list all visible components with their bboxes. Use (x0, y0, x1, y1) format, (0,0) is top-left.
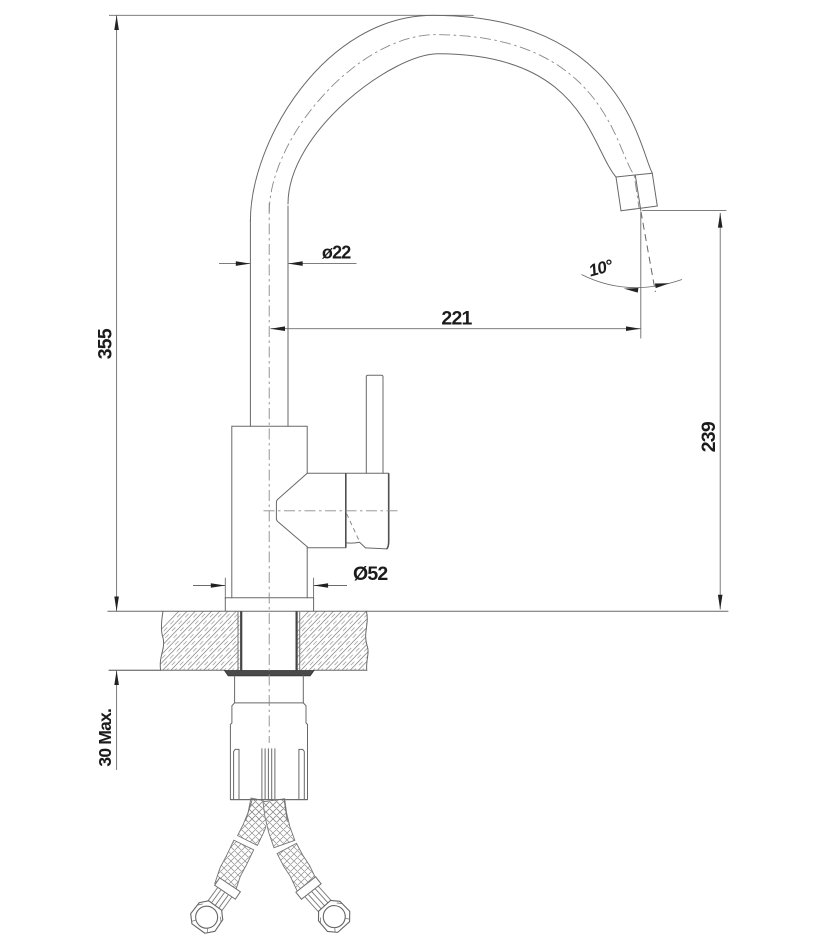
svg-text:Ø52: Ø52 (353, 563, 388, 585)
svg-text:ø22: ø22 (322, 243, 351, 263)
svg-text:355: 355 (94, 328, 116, 359)
svg-text:239: 239 (698, 421, 720, 452)
svg-text:30 Max.: 30 Max. (95, 709, 115, 767)
svg-text:221: 221 (441, 308, 472, 330)
